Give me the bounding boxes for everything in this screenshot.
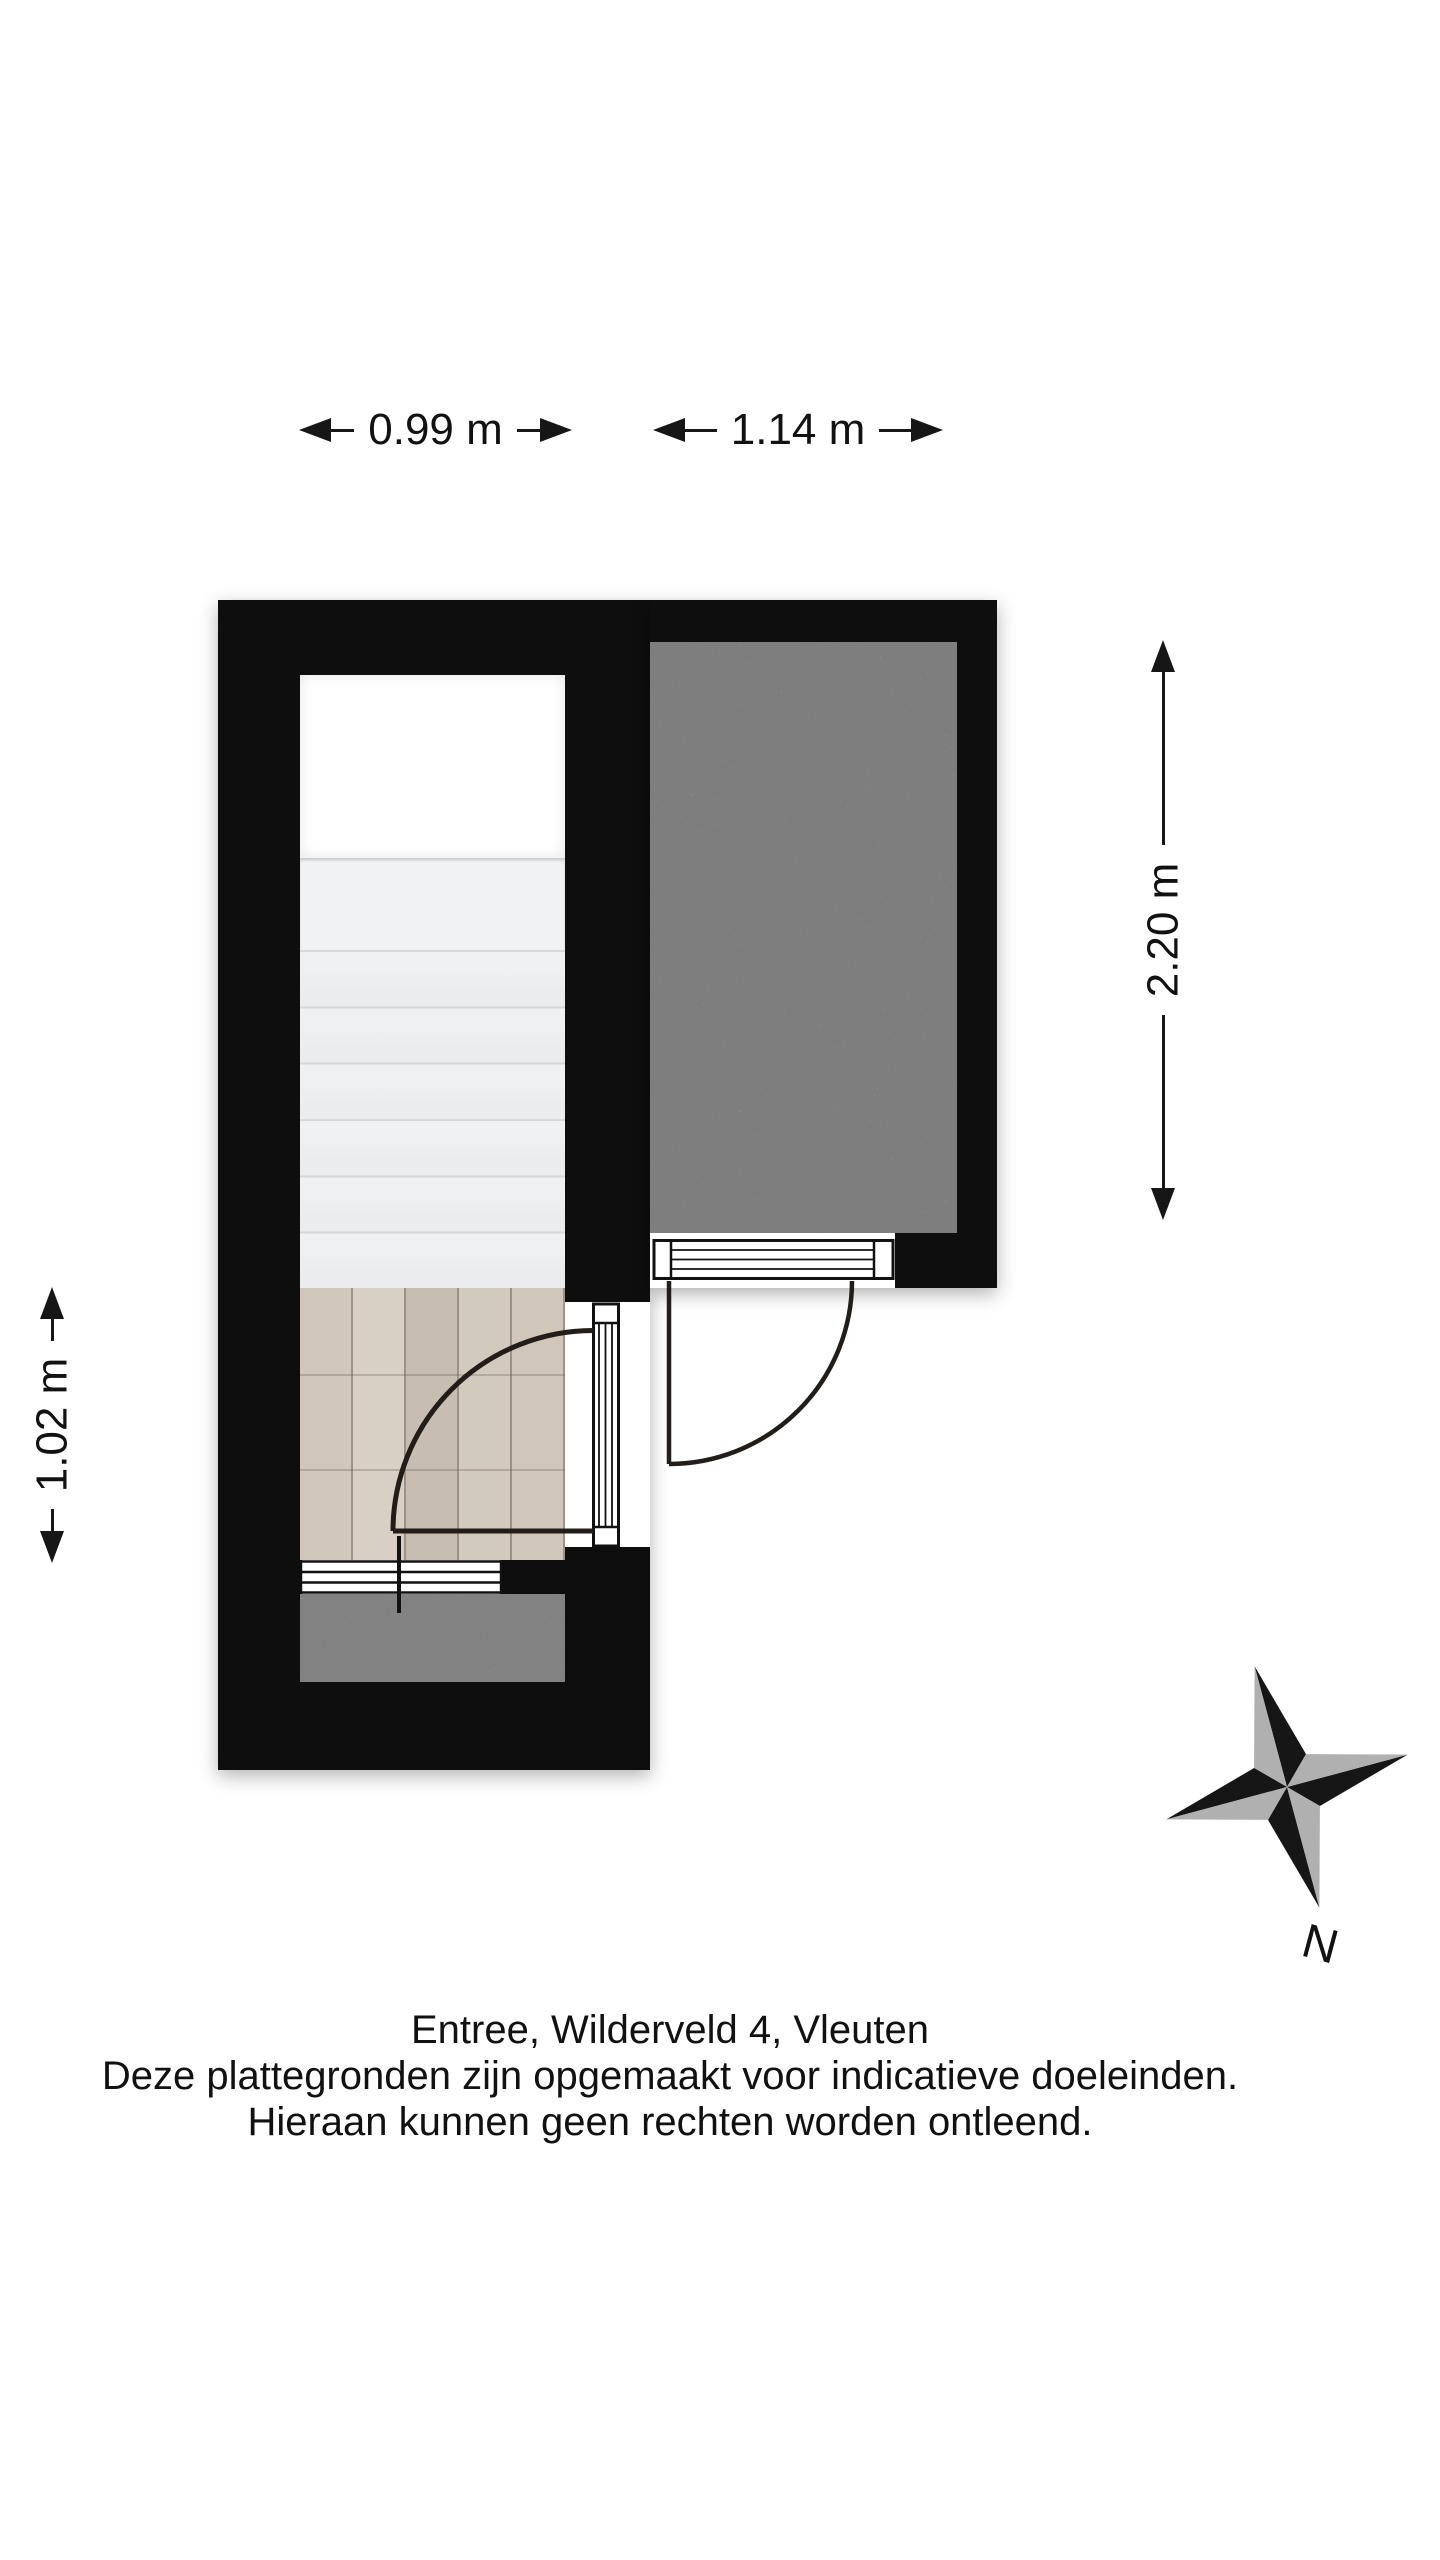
dimension-line <box>1162 672 1165 845</box>
footer-address: Entree, Wilderveld 4, Vleuten <box>0 2007 1340 2053</box>
arrow-up-icon <box>1151 640 1175 672</box>
dimension-line <box>51 1509 54 1531</box>
entree-wood-floor <box>300 1288 565 1560</box>
storage-texture <box>650 642 957 1233</box>
storage-door-swing <box>669 1281 852 1464</box>
dimension-storage-height: 2.20 m <box>1133 640 1193 1220</box>
wall-stub-right-of-window <box>502 1560 565 1594</box>
dimension-label: 1.02 m <box>30 1358 74 1493</box>
storage-room-floor <box>650 642 957 1233</box>
storage-door-opening <box>650 1233 895 1288</box>
stair-treads <box>300 950 565 1288</box>
dimension-label-wrap: 1.02 m <box>24 1341 80 1509</box>
dimension-line <box>331 429 354 432</box>
arrow-right-icon <box>540 418 572 442</box>
compass-icon: N <box>1166 1666 1407 1974</box>
arrow-right-icon <box>911 418 943 442</box>
dimension-line <box>685 429 717 432</box>
dimension-label: 1.14 m <box>717 408 880 452</box>
stairwell-void <box>300 675 565 858</box>
dimension-label: 2.20 m <box>1141 863 1185 998</box>
entree-door-opening <box>565 1302 650 1547</box>
dimension-label: 0.99 m <box>354 408 517 452</box>
footer-caption: Entree, Wilderveld 4, Vleuten Deze platt… <box>0 2007 1340 2145</box>
porch-texture <box>300 1594 565 1682</box>
dimension-line <box>879 429 911 432</box>
window-band <box>300 1560 502 1594</box>
compass-north-label: N <box>1297 1914 1344 1974</box>
dimension-entree-height: 1.02 m <box>22 1287 82 1563</box>
arrow-left-icon <box>653 418 685 442</box>
footer-disclaimer-2: Hieraan kunnen geen rechten worden ontle… <box>0 2099 1340 2145</box>
stair-landing <box>300 858 565 950</box>
arrow-down-icon <box>1151 1188 1175 1220</box>
floorplan-page: 0.99 m 1.14 m 2.20 m 1.02 m <box>0 0 1440 2560</box>
dimension-line <box>51 1319 54 1341</box>
arrow-left-icon <box>299 418 331 442</box>
arrow-down-icon <box>40 1531 64 1563</box>
dimension-storage-width: 1.14 m <box>653 402 943 458</box>
arrow-up-icon <box>40 1287 64 1319</box>
dimension-label-wrap: 2.20 m <box>1135 845 1191 1015</box>
dimension-stair-width: 0.99 m <box>299 402 572 458</box>
porch-floor <box>300 1594 565 1682</box>
footer-disclaimer-1: Deze plattegronden zijn opgemaakt voor i… <box>0 2053 1340 2099</box>
dimension-line <box>517 429 540 432</box>
dimension-line <box>1162 1015 1165 1188</box>
